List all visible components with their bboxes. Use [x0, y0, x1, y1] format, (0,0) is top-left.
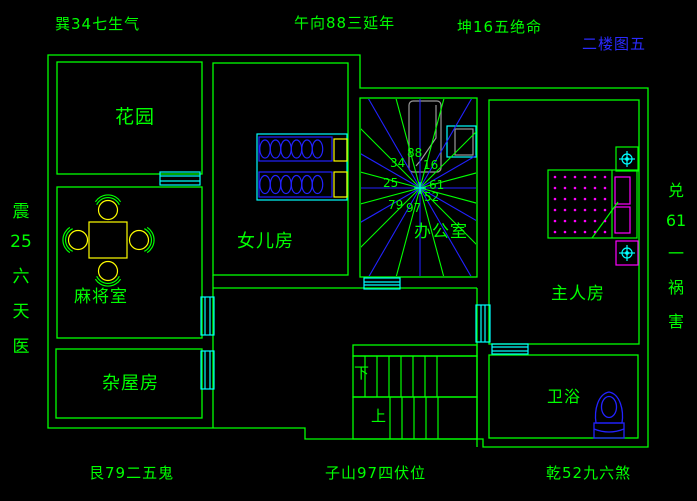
- room-label-garden: 花园: [115, 107, 155, 128]
- mahjong-table: [89, 222, 127, 258]
- room-label-storage: 杂屋房: [102, 374, 159, 394]
- mattress-dot-pattern: [554, 176, 607, 234]
- mahjong-set: [63, 195, 154, 286]
- daughter-beds: [257, 134, 347, 200]
- chair-top: [99, 201, 118, 220]
- lamp-icon: [619, 151, 635, 167]
- star-number: 52: [424, 190, 439, 204]
- stair-upper-flight: [353, 356, 477, 397]
- room-label-daughter: 女儿房: [237, 232, 294, 252]
- office-side-table: [447, 126, 476, 157]
- chair-backs: [63, 195, 154, 286]
- stair-landing: [353, 345, 477, 356]
- chair-bottom: [99, 262, 118, 281]
- star-number: 79: [388, 198, 403, 212]
- pillow-bottom: [334, 172, 347, 197]
- room-label-mahjong: 麻将室: [74, 288, 128, 307]
- vchar: 祸: [668, 274, 684, 298]
- compass-label-zi: 子山97四伏位: [325, 465, 426, 482]
- room-mahjong-outline: [57, 187, 202, 338]
- compass-label-zhen: 震 25 六 天 医: [8, 197, 34, 357]
- vchar: 25: [10, 232, 32, 252]
- vchar: 害: [668, 308, 684, 332]
- compass-label-xun: 巽34七生气: [55, 16, 140, 33]
- compass-label-qian: 乾52九六煞: [546, 465, 631, 482]
- room-label-master: 主人房: [551, 285, 605, 304]
- toilet-icon: [594, 392, 624, 438]
- vchar: 61: [666, 211, 686, 230]
- pillow-right: [615, 207, 630, 233]
- vchar: 六: [13, 262, 30, 287]
- star-number: 88: [407, 146, 422, 160]
- room-master-outline: [489, 100, 639, 344]
- stair-label-up: 上: [371, 408, 387, 425]
- vchar: 震: [13, 197, 30, 222]
- star-number: 97: [406, 201, 421, 215]
- lamp-icon: [619, 245, 635, 261]
- window-hall-left: [201, 297, 214, 335]
- compass-label-gen: 艮79二五鬼: [89, 465, 174, 482]
- star-number: 25: [383, 176, 398, 190]
- floorplan-drawing: 3488162561799752: [0, 0, 697, 501]
- compass-label-wu: 午向88三延年: [294, 15, 395, 32]
- star-number: 16: [423, 158, 438, 172]
- mattress-pattern: [260, 140, 323, 194]
- pillow-left: [615, 177, 630, 204]
- window-master-left: [476, 305, 490, 342]
- window-bath-top: [492, 344, 528, 354]
- compass-label-dui: 兑 61 一 祸 害: [663, 177, 689, 332]
- pillow-top: [334, 139, 347, 161]
- star-numbers: 3488162561799752: [383, 146, 444, 215]
- window-storage: [201, 351, 214, 389]
- chair-right: [130, 231, 149, 250]
- nightstand-bottom: [616, 241, 638, 265]
- room-label-bath: 卫浴: [547, 388, 581, 406]
- plan-title: 二楼图五: [582, 36, 646, 53]
- vchar: 医: [13, 332, 30, 357]
- vchar: 一: [668, 240, 684, 264]
- stair-label-down: 下: [354, 365, 370, 382]
- nightstand-top: [616, 147, 638, 171]
- room-label-office: 办公室: [414, 223, 468, 242]
- compass-label-kun: 坤16五绝命: [457, 19, 542, 36]
- vchar: 兑: [668, 177, 684, 201]
- vchar: 天: [13, 297, 30, 322]
- star-number: 34: [390, 156, 405, 170]
- chair-left: [69, 231, 88, 250]
- floorplan-canvas: 3488162561799752: [0, 0, 697, 501]
- master-bed: [548, 170, 637, 238]
